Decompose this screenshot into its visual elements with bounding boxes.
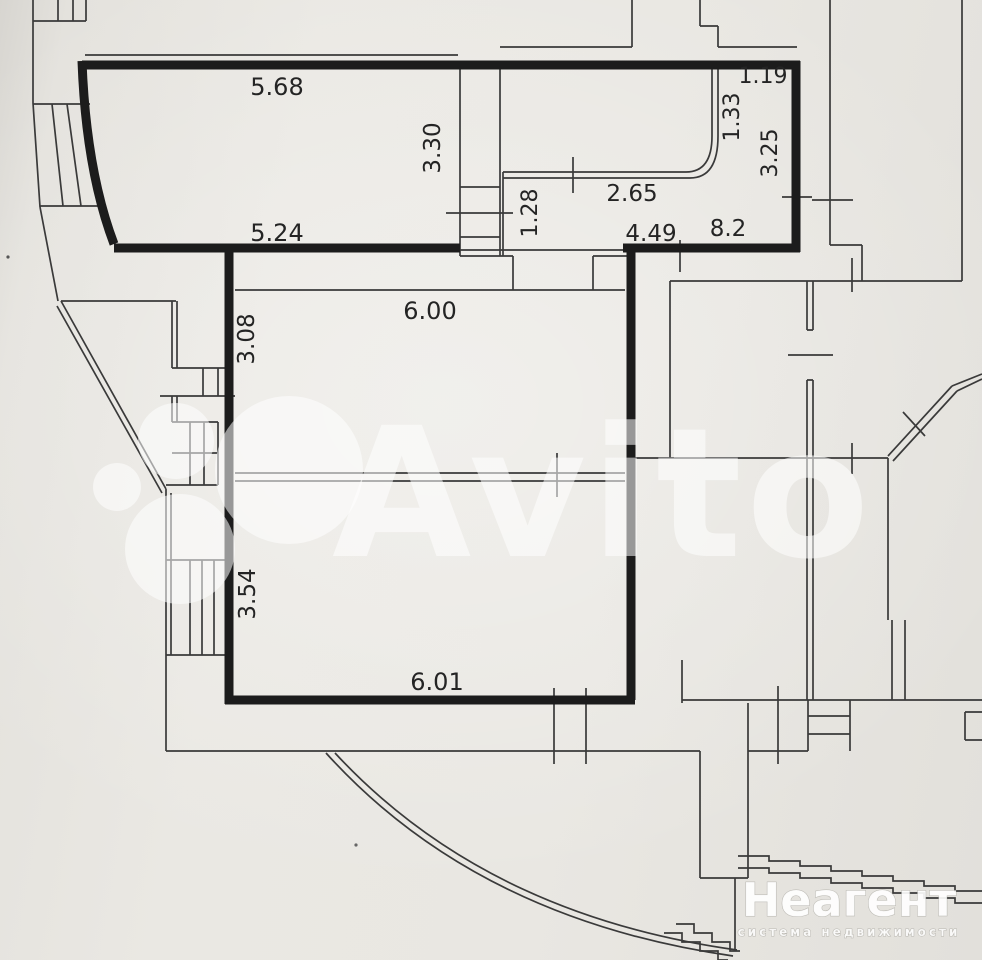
avito-logo-circle [93,463,141,511]
dimension-label-room2-bottom-width: 4.49 [625,221,676,247]
neagent-watermark-title: Неагент [742,873,957,927]
left-facade-lines [33,0,700,751]
dimension-label-room2-height: 3.25 [758,129,783,178]
dimension-label-niche-height: 1.33 [720,93,745,142]
balcony-arc [326,753,737,956]
floor-plan-scan: Avito Неагент система недвижимости 5.68 … [0,0,982,960]
avito-logo-circle [125,494,235,604]
dimension-label-niche-width: 1.19 [739,64,788,89]
neagent-watermark-subtitle: система недвижимости [738,925,961,939]
dimension-label-room4-height: 3.54 [235,568,261,619]
neagent-watermark: Неагент система недвижимости [738,873,961,939]
dimension-label-duct-height: 1.28 [518,189,543,238]
paper-speck [354,843,357,846]
dimension-label-room2-inner-width: 2.65 [606,181,657,207]
dimension-label-room3-width: 6.00 [403,297,456,325]
dimension-labels: 5.68 3.30 5.24 1.19 1.33 3.25 2.65 1.28 … [234,64,787,696]
dimension-label-room1-height: 3.30 [420,122,446,173]
avito-watermark-text: Avito [332,390,874,599]
dimension-label-room1-top-width: 5.68 [250,73,303,101]
dimension-label-room1-bottom-width: 5.24 [250,219,303,247]
dimension-label-room4-width: 6.01 [410,668,463,696]
dimension-label-room2-area: 8.2 [710,216,747,242]
dimension-label-room3-height: 3.08 [234,313,260,364]
avito-logo-circle [138,403,214,479]
floor-plan-drawing: Avito Неагент система недвижимости 5.68 … [0,0,982,960]
paper-speck [6,255,9,258]
